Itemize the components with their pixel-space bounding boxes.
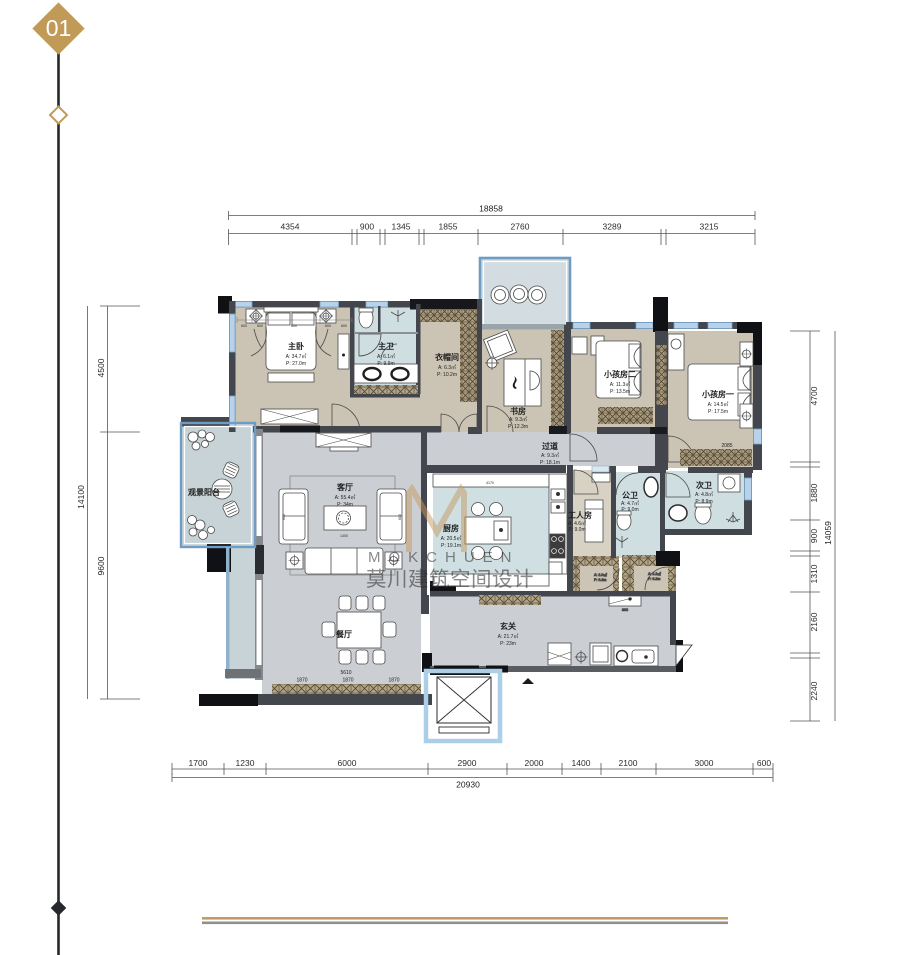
svg-text:小孩房一: 小孩房一 — [701, 389, 734, 399]
svg-text:900: 900 — [360, 222, 374, 232]
svg-text:01: 01 — [46, 15, 72, 41]
svg-text:1700: 1700 — [189, 758, 208, 768]
svg-text:P: 6.3m: P: 6.3m — [648, 577, 660, 581]
svg-text:600: 600 — [398, 514, 402, 520]
svg-text:6000: 6000 — [338, 758, 357, 768]
svg-text:P: 17.5m: P: 17.5m — [708, 409, 728, 415]
svg-text:A: 4.7㎡: A: 4.7㎡ — [621, 500, 639, 507]
svg-text:600: 600 — [757, 758, 771, 768]
svg-text:A: 21.7㎡: A: 21.7㎡ — [498, 633, 519, 640]
svg-text:A: 6.1㎡: A: 6.1㎡ — [377, 353, 395, 360]
svg-text:2085: 2085 — [721, 443, 732, 449]
svg-text:3000: 3000 — [695, 758, 714, 768]
svg-text:主卧: 主卧 — [288, 341, 304, 351]
svg-text:P: 27.0m: P: 27.0m — [286, 361, 306, 367]
svg-text:P: 9.9m: P: 9.9m — [377, 361, 394, 367]
svg-text:A: 9.3㎡: A: 9.3㎡ — [509, 416, 527, 423]
svg-text:观景阳台: 观景阳台 — [188, 487, 220, 497]
svg-text:600: 600 — [341, 324, 347, 328]
svg-text:20930: 20930 — [456, 780, 480, 790]
svg-text:P: 8.9m: P: 8.9m — [695, 499, 712, 505]
svg-text:4500: 4500 — [96, 358, 106, 377]
svg-text:P: 34m: P: 34m — [337, 502, 353, 508]
svg-text:A: 20.5㎡: A: 20.5㎡ — [441, 535, 462, 542]
svg-text:客厅: 客厅 — [336, 482, 353, 492]
svg-text:2100: 2100 — [619, 758, 638, 768]
svg-text:2240: 2240 — [809, 681, 819, 700]
svg-text:1870: 1870 — [388, 678, 399, 684]
svg-text:A: 9.3㎡: A: 9.3㎡ — [541, 452, 559, 459]
svg-text:800: 800 — [291, 324, 297, 328]
svg-text:厨房: 厨房 — [443, 523, 459, 533]
svg-text:过道: 过道 — [542, 441, 558, 451]
svg-text:P: 23m: P: 23m — [500, 641, 516, 647]
svg-text:小孩房二: 小孩房二 — [603, 369, 636, 379]
svg-text:A: 6.3㎡: A: 6.3㎡ — [438, 364, 456, 371]
svg-text:1400: 1400 — [340, 534, 348, 538]
svg-text:4700: 4700 — [809, 386, 819, 405]
svg-text:A: 11.3㎡: A: 11.3㎡ — [610, 381, 630, 388]
svg-text:5610: 5610 — [340, 670, 351, 676]
svg-text:2760: 2760 — [511, 222, 530, 232]
svg-text:2000: 2000 — [525, 758, 544, 768]
svg-text:1870: 1870 — [342, 678, 353, 684]
svg-text:1400: 1400 — [572, 758, 591, 768]
svg-text:1870: 1870 — [296, 678, 307, 684]
svg-text:600: 600 — [257, 324, 263, 328]
svg-text:A: 4.6㎡: A: 4.6㎡ — [568, 520, 586, 527]
svg-text:1230: 1230 — [236, 758, 255, 768]
svg-text:A: 4.8㎡: A: 4.8㎡ — [695, 491, 713, 498]
svg-text:14100: 14100 — [76, 485, 86, 509]
svg-text:600: 600 — [241, 324, 247, 328]
svg-text:4354: 4354 — [281, 222, 300, 232]
svg-text:P: 18.1m: P: 18.1m — [540, 460, 560, 466]
svg-text:14059: 14059 — [823, 521, 833, 545]
svg-text:1310: 1310 — [809, 564, 819, 583]
svg-text:P: 13.5m: P: 13.5m — [610, 389, 630, 395]
svg-text:P: 9.0m: P: 9.0m — [621, 507, 638, 513]
svg-text:P: 10.2m: P: 10.2m — [437, 372, 457, 378]
svg-text:A: 14.5㎡: A: 14.5㎡ — [708, 401, 729, 408]
svg-text:衣帽间: 衣帽间 — [435, 352, 459, 362]
svg-text:1855: 1855 — [439, 222, 458, 232]
svg-text:P: 9.0m: P: 9.0m — [568, 527, 585, 533]
svg-text:玄关: 玄关 — [500, 621, 516, 631]
svg-text:A: 55.4㎡: A: 55.4㎡ — [335, 494, 356, 501]
svg-text:次卫: 次卫 — [696, 480, 712, 490]
svg-text:1345: 1345 — [392, 222, 411, 232]
svg-text:4170: 4170 — [486, 481, 494, 485]
svg-text:餐厅: 餐厅 — [335, 629, 352, 639]
svg-text:600: 600 — [325, 324, 331, 328]
svg-text:3215: 3215 — [700, 222, 719, 232]
svg-text:莫川建筑空间设计: 莫川建筑空间设计 — [366, 568, 534, 591]
svg-text:A: 34.7㎡: A: 34.7㎡ — [286, 353, 307, 360]
svg-text:2900: 2900 — [458, 758, 477, 768]
svg-text:3289: 3289 — [603, 222, 622, 232]
svg-text:9600: 9600 — [96, 556, 106, 575]
svg-text:P: 12.3m: P: 12.3m — [508, 424, 528, 430]
svg-text:公卫: 公卫 — [622, 491, 638, 500]
svg-text:18858: 18858 — [479, 204, 503, 214]
svg-text:300: 300 — [622, 608, 628, 612]
svg-text:工人房: 工人房 — [568, 510, 592, 520]
svg-text:主卫: 主卫 — [378, 341, 394, 351]
svg-text:书房: 书房 — [510, 406, 526, 416]
svg-text:600: 600 — [282, 514, 286, 520]
svg-text:A: 2.0㎡: A: 2.0㎡ — [594, 572, 607, 577]
svg-text:900: 900 — [809, 529, 819, 543]
svg-text:MOKCHUEN: MOKCHUEN — [368, 549, 520, 566]
svg-text:P: 6.3m: P: 6.3m — [594, 578, 606, 582]
svg-text:2160: 2160 — [809, 612, 819, 631]
svg-text:1880: 1880 — [809, 483, 819, 502]
